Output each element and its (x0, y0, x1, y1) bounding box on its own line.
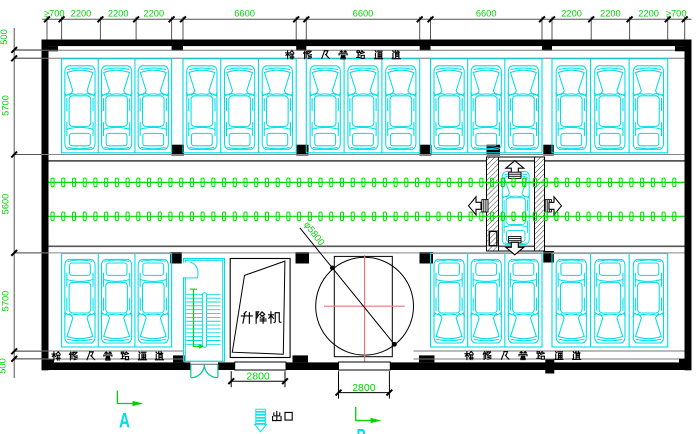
svg-text:5700: 5700 (1, 291, 11, 312)
svg-text:A: A (119, 409, 130, 432)
svg-text:≥700: ≥700 (666, 8, 687, 18)
svg-text:5600: 5600 (1, 194, 11, 215)
svg-text:500: 500 (0, 29, 9, 45)
svg-text:6600: 6600 (476, 8, 497, 18)
svg-text:2200: 2200 (600, 8, 621, 18)
svg-text:6600: 6600 (234, 8, 255, 18)
svg-text:B: B (357, 426, 367, 434)
svg-text:≥700: ≥700 (44, 8, 65, 18)
svg-text:2200: 2200 (108, 8, 129, 18)
svg-text:500: 500 (0, 358, 8, 374)
svg-text:6600: 6600 (353, 8, 374, 18)
svg-text:2200: 2200 (561, 8, 582, 18)
svg-text:2200: 2200 (71, 8, 92, 18)
svg-text:2800: 2800 (352, 382, 376, 394)
svg-text:2800: 2800 (246, 371, 270, 383)
svg-text:2200: 2200 (638, 8, 659, 18)
svg-text:2200: 2200 (143, 8, 164, 18)
svg-text:5700: 5700 (1, 95, 11, 116)
